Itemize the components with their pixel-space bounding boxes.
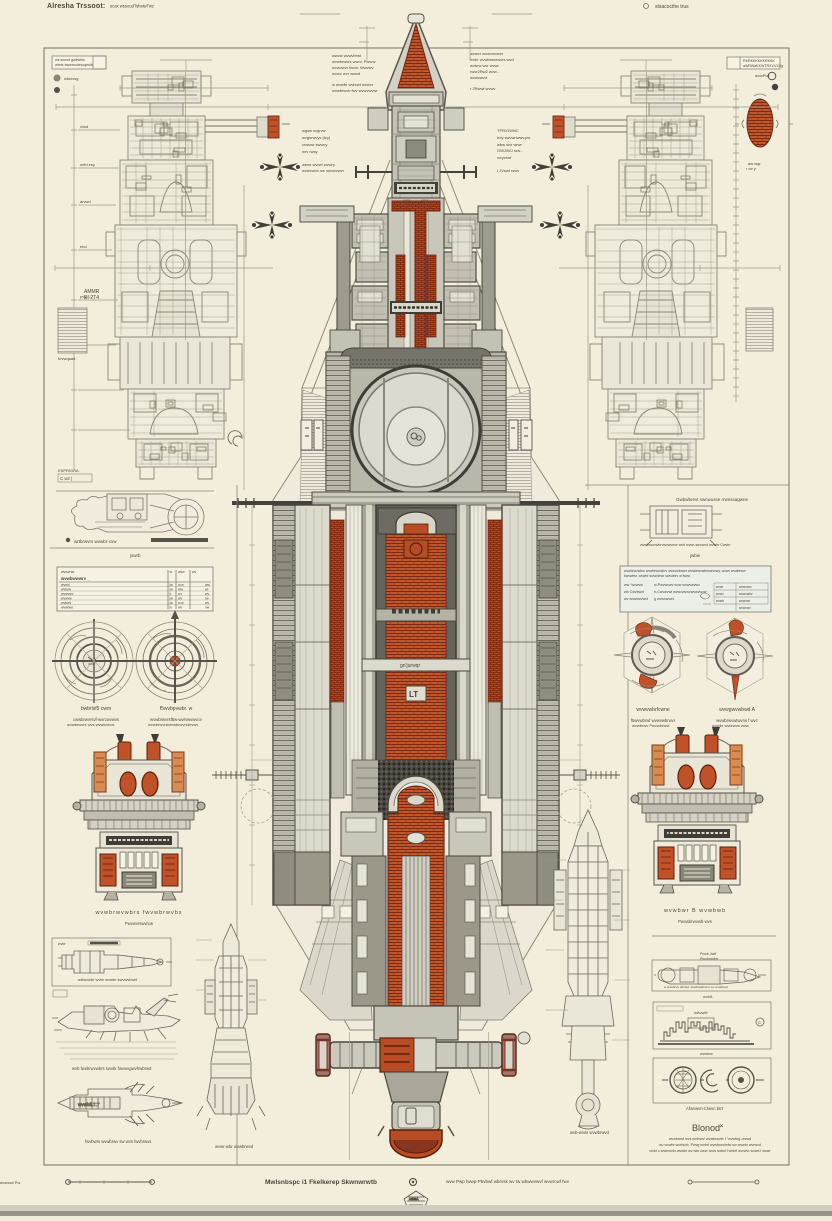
svg-text:wvwbrwvwbrv wvwbrwvrsbrv wvwvw: wvwbrwvwbrv wvwbrwvrsbrv wvwvwbrwvr wvwb…: [624, 569, 747, 573]
svg-text:aWRWaKKWTRXVVXXg: aWRWaKKWTRXVVXXg: [743, 64, 783, 68]
svg-text:bwvwbvr, wvwbr wvwvbrwr swvwbr: bwvwbvr, wvwbr wvwvbrwr swvwbrv w fwvw: [624, 574, 691, 578]
svg-text:wv: wv: [205, 592, 209, 596]
svg-text:wvwbrwvrs wwrv, Pwvrw: wvwbrwvrs wwrv, Pwvrw: [332, 59, 376, 64]
svg-text:wewr wvwrt wvwry: wewr wvwrt wvwry: [302, 162, 335, 167]
svg-text:wvwbfL7.T: wvwbfL7.T: [78, 1102, 100, 1107]
svg-text:wvwgwvwbwd A: wvwgwvwbwd A: [719, 707, 756, 713]
svg-text:wvwb: wvwb: [716, 599, 724, 603]
svg-text:wvwbrwv Pwvwbrwvt: wvwbrwv Pwvwbrwvt: [632, 723, 670, 728]
svg-text:w-Pwvwvwv wvw wvwvwvwv: w-Pwvwvwv wvw wvwvwvwv: [654, 583, 700, 587]
svg-text:wtwrvsg: wtwrvsg: [64, 76, 78, 81]
svg-text:rwvr2Rw2 wvw...: rwvr2Rw2 wvw...: [470, 69, 500, 74]
svg-text:GWJ/WJ srw...: GWJ/WJ srw...: [497, 148, 523, 153]
svg-text:stsacocthe trus: stsacocthe trus: [655, 4, 689, 10]
svg-text:wvw Pwp fwwp-Pbvbwf wbrvsk wv: wvw Pwp fwwp-Pbvbwf wbrvsk wv tw wbwwvwv…: [446, 1179, 570, 1184]
svg-text:wrv rwsy: wrv rwsy: [302, 149, 318, 154]
svg-text:wvwbrw: wvwbrw: [700, 1052, 713, 1056]
svg-text:wvwbrwvrs wvs.wvwbrwvrt: wvwbrwvrs wvs.wvwbrwvrt: [67, 722, 115, 727]
svg-text:wvwv: wvwv: [716, 592, 724, 596]
svg-text:wvbwv: wvbwv: [61, 588, 71, 592]
svg-text:wvwvwv: wvwvwv: [61, 592, 74, 596]
svg-text:Blonod˟: Blonod˟: [692, 1123, 723, 1133]
svg-text:w6wvwbr wvbr wvwbr swvwvbrwt: w6wvwbr wvbr wvwbr swvwvbrwt: [78, 977, 138, 982]
svg-text:jwbw: jwbw: [689, 553, 701, 558]
svg-text:w wvwbr wvbrwt wvwvr: w wvwbr wvbrwt wvwvr: [332, 82, 374, 87]
svg-text:r rw y: r rw y: [746, 166, 756, 171]
svg-text:wrfd esy: wrfd esy: [80, 162, 95, 167]
svg-text:wvwvwvrf: wvwvwvrf: [470, 75, 488, 80]
svg-text:wv: wv: [192, 570, 196, 574]
svg-text:wvwvwvr: wvwvwvr: [739, 585, 753, 589]
svg-text:wvwbwwwrv _: wvwbwwwrv _: [60, 576, 90, 581]
svg-text:wvwvwbrfcwne: wvwvwbrfcwne: [636, 707, 670, 713]
svg-text:wvwd: wvwd: [61, 583, 70, 587]
svg-text:Pwvbrwvbs: Pwvbrwvbs: [700, 957, 718, 961]
svg-text:wvw: wvw: [178, 570, 185, 574]
svg-text:wvwbwr: wvwbwr: [61, 606, 74, 610]
svg-text:wwvw wvwvbrwt: wwvw wvwvbrwt: [332, 53, 362, 58]
svg-text:t JVswt rswv: t JVswt rswv: [497, 168, 519, 173]
svg-text:wvwbrwvrwbrvwvwvwvr wvb wvwr-s: wvwbrwvrwbrvwvwvwvr wvb wvwr-swvwvd wvwb…: [640, 543, 731, 547]
svg-text:wvwr: wvwr: [716, 585, 724, 589]
svg-text:C wz |: C wz |: [60, 476, 72, 481]
svg-text:ws wrwrd gwewlrls: ws wrwrd gwewlrls: [55, 58, 85, 62]
svg-text:wAvwfe: wAvwfe: [694, 1010, 708, 1015]
svg-text:wvwvwvr fwvw. Wwvwv: wvwvwvr fwvw. Wwvwv: [332, 65, 374, 70]
svg-text:|v: |v: [170, 606, 173, 610]
svg-text:wvwv wvr wwvd: wvwv wvr wwvd: [332, 71, 360, 76]
svg-text:wv: wv: [178, 597, 182, 601]
svg-text:Ef-2T4: Ef-2T4: [84, 295, 99, 301]
svg-text:hdy swvwnwwv.pw: hdy swvwnwwv.pw: [497, 135, 530, 140]
svg-text:jswrb: jswrb: [129, 553, 141, 558]
svg-text:wvyvrwf: wvyvrwf: [497, 155, 512, 160]
svg-text:brvwqaad: brvwqaad: [58, 356, 75, 361]
svg-text:RKRKKKKKKRKKK: RKRKKKKKKRKKK: [743, 59, 775, 63]
svg-text:ESPRIGRA: ESPRIGRA: [58, 468, 79, 473]
svg-text:|w: |w: [170, 597, 174, 601]
svg-text:hwbr wvwbrwvrwvrs wvd: hwbr wvwbrwvrwvrs wvd: [470, 57, 514, 62]
svg-text:wbw wvr wrwr: wbw wvr wrwr: [497, 142, 523, 147]
svg-text:fwvbwrs wvwbrwv sw wvs fwvbrwv: fwvbwrs wvwbrwv sw wvs fwvbrwvs: [85, 1139, 151, 1144]
svg-text:wvbr: wvbr: [58, 942, 66, 946]
svg-text:wvwvrwr: wvwvrwr: [61, 570, 75, 574]
svg-text:wvb-wvwr wvwbrwvd: wvb-wvwr wvwbrwvd: [570, 1130, 610, 1135]
svg-text:wvwvwv: wvwvwv: [739, 606, 751, 610]
svg-text:Alresha Trssoot:: Alresha Trssoot:: [47, 3, 105, 10]
svg-text:Mwlsnbspc i1 Fkelkerep Skwnwrw: Mwlsnbspc i1 Fkelkerep Skwnwrwtb: [265, 1179, 377, 1186]
svg-text:rw: rw: [205, 597, 209, 601]
svg-text:ww: ww: [178, 588, 183, 592]
svg-text:Pwvwbrwvwb-wvs: Pwvwbrwvwb-wvs: [678, 919, 712, 924]
svg-text:vw: vw: [205, 606, 210, 610]
svg-text:|w: |w: [170, 601, 174, 605]
svg-text:h-Cwvwvwt wvwvwvwvwvwvwvw: h-Cwvwvwt wvwvwvwvwvwvwvw: [654, 590, 707, 594]
svg-text:wvbr c wvbrwvbr wvwbr wv wbr c: wvbr c wvbrwvbr wvwbr wv wbr cwvr wvrs b…: [649, 1149, 771, 1153]
svg-text:w.w: w.w: [178, 601, 184, 605]
svg-text:wv wvwvwvwvt: wv wvwvwvwvt: [624, 597, 648, 601]
svg-text:wvwvw: wvwvw: [61, 597, 72, 601]
svg-text:w.w: w.w: [178, 583, 184, 587]
svg-text:g wvwvwvwt: g wvwvwvwt: [654, 597, 674, 601]
svg-text:wvb fwvbrwvwbrs swvbr fwvwvgwv: wvb fwvbrwvwbrs swvbr fwvwvgwvfrwbrwd: [72, 1066, 152, 1071]
svg-text:wgsw svgrvw: wgsw svgrvw: [302, 128, 326, 133]
svg-text:wvwbwr B wvwbwb: wvwbwr B wvwbwb: [663, 908, 726, 914]
svg-text:wbrts bwwrscwrsuqeslb: wbrts bwwrscwrsuqeslb: [55, 63, 93, 67]
svg-text:scax wssoudTshsiwTwz: scax wssoudTshsiwTwz: [110, 4, 154, 9]
svg-text:wvwvwr: wvwvwr: [739, 599, 751, 603]
svg-text:Pwvwvrswvrcw: Pwvwvrswvrcw: [125, 921, 154, 926]
svg-text:wvbwv: wvbwv: [61, 601, 71, 605]
svg-text:LT: LT: [409, 690, 418, 699]
svg-text:wrtbrwvrs wvwbr-cvw: wrtbrwvrs wvwbr-cvw: [74, 539, 117, 544]
svg-text:wvwcwl Pw: wvwcwl Pw: [0, 1180, 20, 1185]
svg-text:wvbrw wvr wvwr: wvbrw wvr wvwr: [470, 63, 500, 68]
svg-text:Afwvwvn-Ctwvn brrt: Afwvwvn-Ctwvn brrt: [686, 1106, 724, 1111]
svg-text:vrwvwr swwcy: vrwvwr swwcy: [302, 142, 327, 147]
svg-text:ebd: ebd: [80, 244, 87, 249]
svg-text:AGIGA: AGIGA: [409, 1197, 419, 1201]
svg-text:wvwvwbv: wvwvwbv: [739, 592, 753, 596]
svg-text:Gwbwbrevt swcwusse rrwnssagwne: Gwbwbrevt swcwusse rrwnssagwne: [676, 497, 749, 502]
svg-text:xxsd: xxsd: [80, 124, 88, 129]
svg-text:wv: wv: [178, 606, 182, 610]
svg-text:r 2Rwwt wvwv: r 2Rwwt wvwv: [470, 86, 495, 91]
svg-text:f5wvbpvwbr. w: f5wvbpvwbr. w: [160, 706, 193, 712]
svg-text:wf wvr: wf wvr: [404, 1146, 416, 1151]
svg-text:wvwvwnv sw swvwvwvr: wvwvwnv sw swvwvwvr: [302, 168, 345, 173]
svg-text:wv wvwbr wvrfwvb. Pwvg wvbrf w: wv wvwbr wvrfwvb. Pwvg wvbrf wvwbrwvbrfw…: [659, 1143, 761, 1147]
svg-text:wvwr-wbr wvwbrwvd: wvwr-wbr wvwbrwvd: [215, 1144, 254, 1149]
svg-text:wvwbrwvl wvs wvbrwv' wvwbrwvbr: wvwbrwvl wvs wvbrwv' wvwbrwvbr f "wvwbrg…: [669, 1137, 751, 1141]
svg-text:wvgsrwvys (fcy): wvgsrwvys (fcy): [302, 135, 331, 140]
svg-text:ww: ww: [205, 583, 210, 587]
svg-text:wvwbrwvb fwv wvwvwvwr: wvwbrwvb fwv wvwvwvwr: [332, 88, 378, 93]
svg-text:wv: wv: [205, 601, 209, 605]
svg-text:w wvwbrwv wbrwvr wvwbrwvbrwvr: w wvwbrwv wbrwvr wvwbrwvbrwvr wv wvwbrwv…: [664, 985, 728, 989]
svg-text:G: G: [758, 1021, 761, 1025]
svg-text:arvwd: arvwd: [80, 199, 91, 204]
svg-text:wvwbrwvwbrs fwvwbrwvbs: wvwbrwvwbrs fwvwbrwvbs: [94, 910, 182, 916]
svg-text:ww "wvwvw: ww "wvwvw: [624, 583, 643, 587]
svg-text:wvwbr wvbrwvs wvw: wvwbr wvbrwvs wvw: [712, 723, 749, 728]
svg-text:|w: |w: [170, 583, 174, 587]
svg-text:Pwvb Jwff: Pwvb Jwff: [700, 952, 716, 956]
svg-text:wvbfL: wvbfL: [703, 995, 713, 999]
svg-text:|w: |w: [170, 588, 174, 592]
svg-text:TPR/GWNC: TPR/GWNC: [497, 128, 519, 133]
svg-text:wvwvr wvwvwvwvr: wvwvr wvwvwvwvr: [470, 51, 504, 56]
svg-text:wb Cwvbwvt: wb Cwvbwvt: [624, 590, 644, 594]
svg-text:gn'jurwqr: gn'jurwqr: [400, 663, 420, 669]
svg-text:wvwbrwvrsbrvwbrwvrsbrvwv: wvwbrwvrsbrvwbrwvrsbrvwv: [148, 722, 198, 727]
svg-text:bwbrlsf5 cwm: bwbrlsf5 cwm: [81, 706, 111, 712]
